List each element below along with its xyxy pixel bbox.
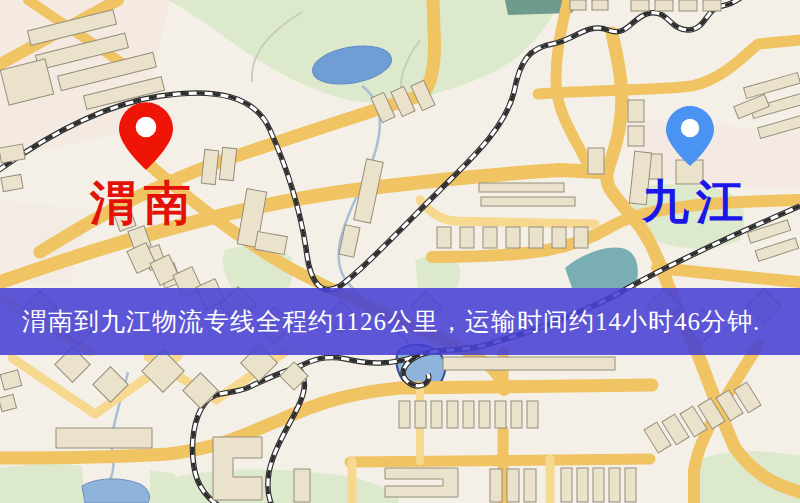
destination-pin[interactable] <box>666 102 714 174</box>
route-info-text: 渭南到九江物流专线全程约1126公里，运输时间约14小时46分钟. <box>0 305 760 338</box>
route-info-banner: 渭南到九江物流专线全程约1126公里，运输时间约14小时46分钟. <box>0 288 800 355</box>
origin-label: 渭南 <box>90 179 198 226</box>
blue-map-pin-icon <box>666 102 714 170</box>
red-map-pin-icon <box>119 102 173 170</box>
destination-label: 九江 <box>642 179 750 226</box>
map-canvas[interactable] <box>0 0 800 503</box>
origin-pin[interactable] <box>119 102 173 174</box>
logistics-route-map: 渭南 九江 渭南到九江物流专线全程约1126公里，运输时间约14小时46分钟. <box>0 0 800 503</box>
